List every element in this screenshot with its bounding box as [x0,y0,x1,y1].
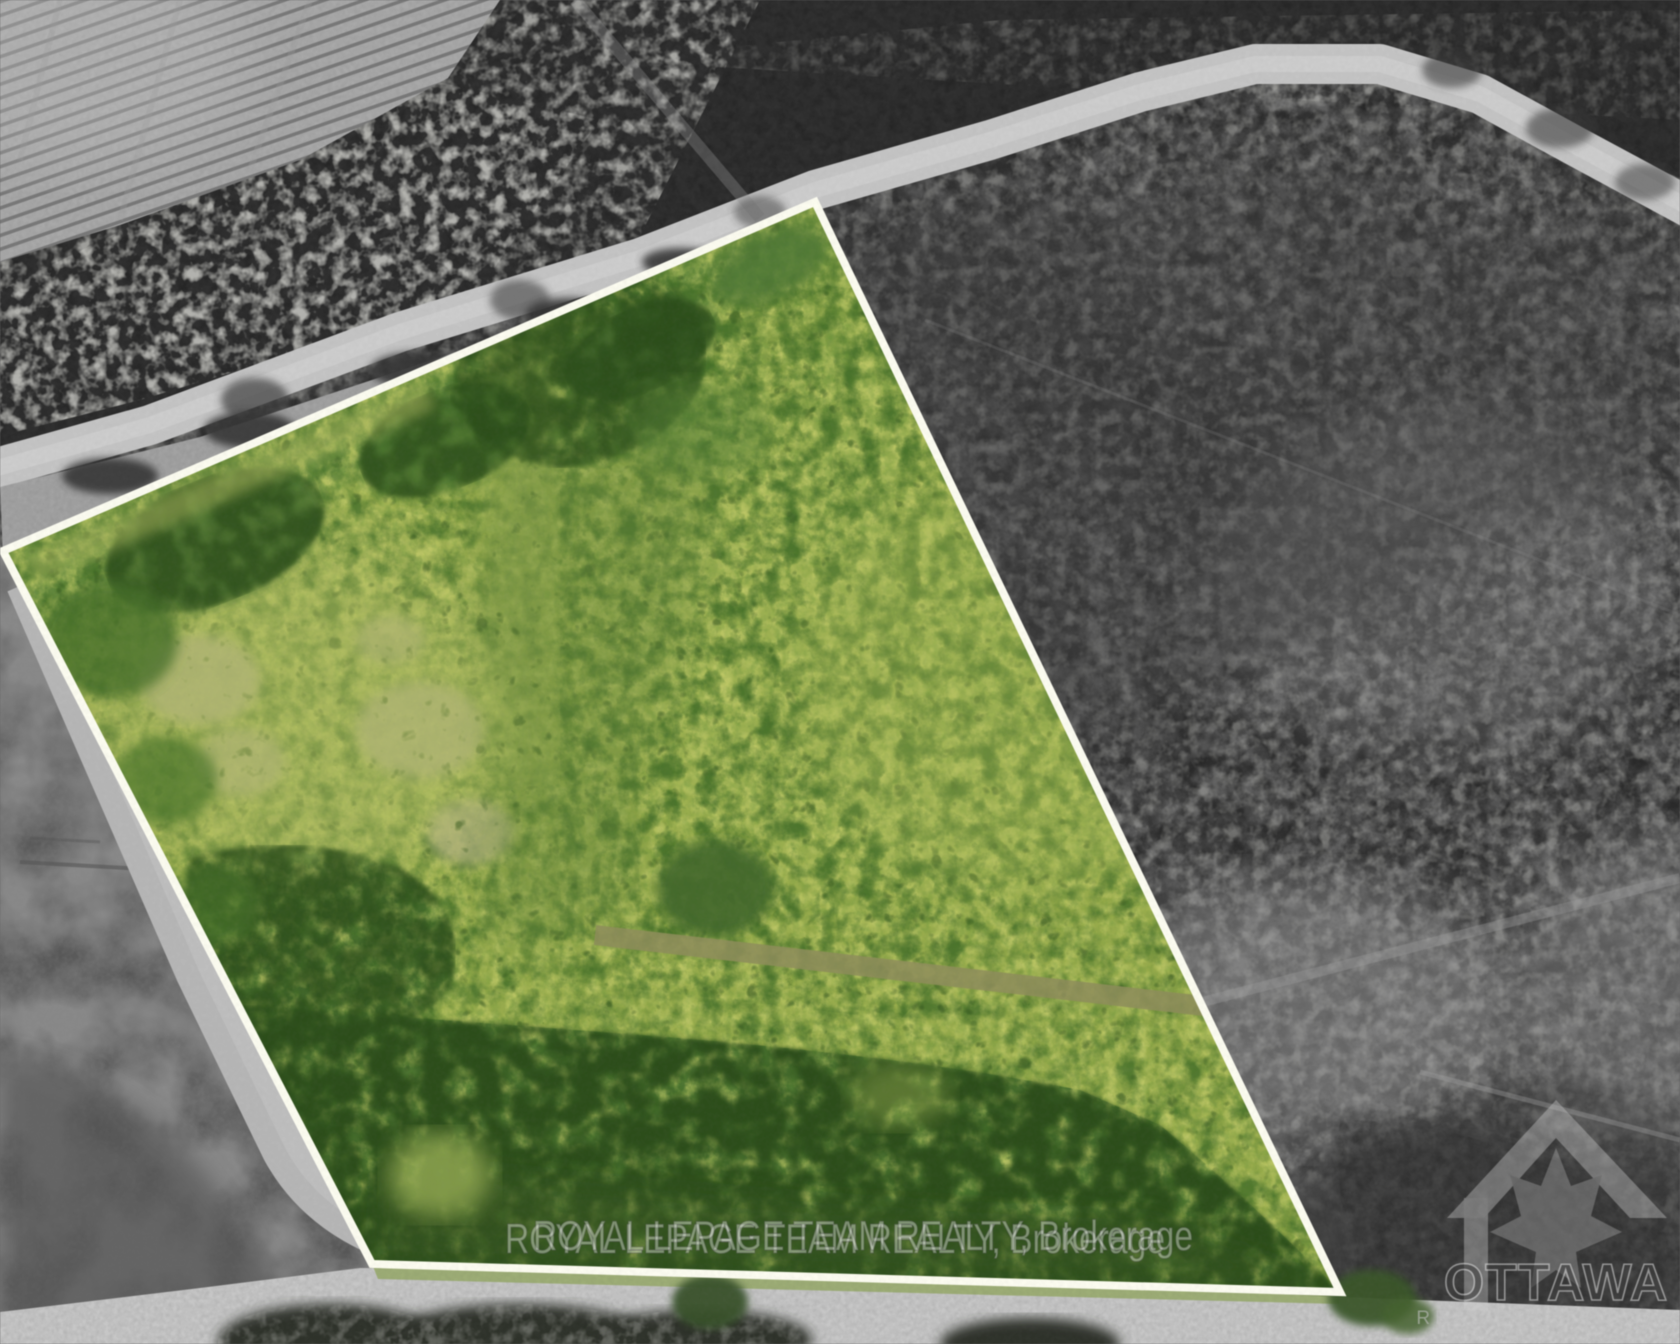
svg-text:ROYAL LEPAGE TEAM REALTY, Brok: ROYAL LEPAGE TEAM REALTY, Brokerage [533,1212,1193,1259]
svg-text:OTTAWA: OTTAWA [1444,1254,1669,1312]
svg-text:REAL ESTATE BOARD: REAL ESTATE BOARD [1416,1308,1680,1329]
